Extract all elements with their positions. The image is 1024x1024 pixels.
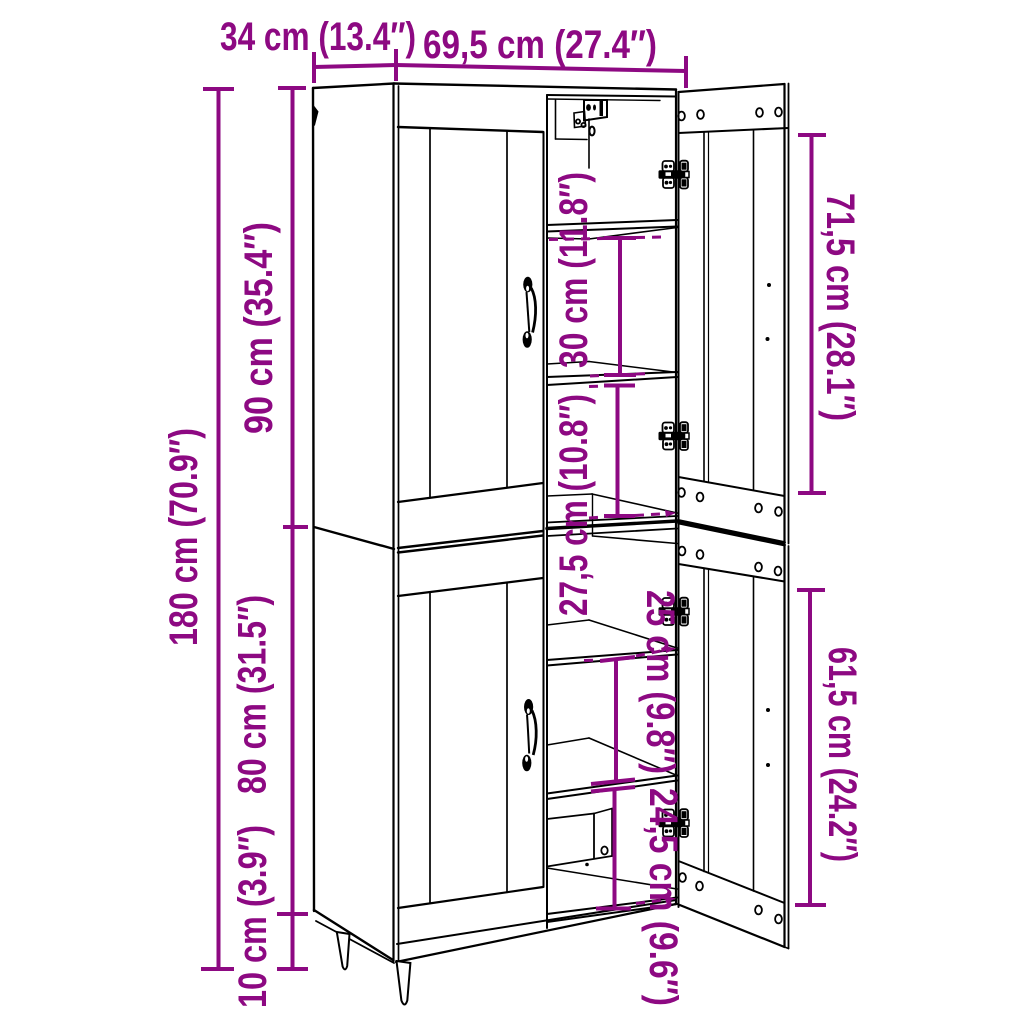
svg-text:61,5 cm (24.2″): 61,5 cm (24.2″): [820, 647, 864, 862]
svg-text:69,5 cm (27.4″): 69,5 cm (27.4″): [423, 23, 657, 67]
svg-text:24,5 cm (9.6″): 24,5 cm (9.6″): [641, 788, 685, 1006]
svg-text:27,5 cm (10.8″): 27,5 cm (10.8″): [552, 394, 596, 616]
svg-text:180 cm (70.9″): 180 cm (70.9″): [162, 428, 206, 646]
svg-text:90 cm (35.4″): 90 cm (35.4″): [237, 222, 281, 434]
svg-text:34 cm (13.4″): 34 cm (13.4″): [220, 15, 416, 59]
svg-text:80 cm (31.5″): 80 cm (31.5″): [231, 595, 275, 794]
svg-text:30 cm (11.8″): 30 cm (11.8″): [552, 172, 596, 368]
svg-text:10 cm (3.9″): 10 cm (3.9″): [231, 825, 275, 1008]
svg-text:25 cm (9.8″): 25 cm (9.8″): [638, 590, 682, 774]
svg-text:71,5 cm (28.1″): 71,5 cm (28.1″): [818, 193, 862, 421]
